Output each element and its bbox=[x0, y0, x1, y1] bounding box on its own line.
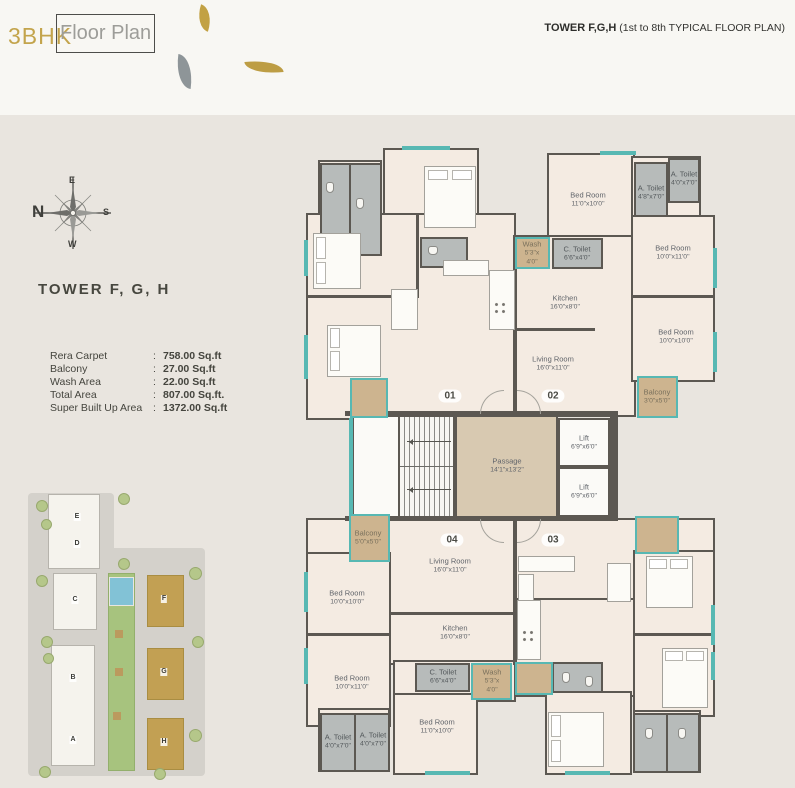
room-label-lift-2: Lift6'9"x6'0" bbox=[571, 483, 597, 502]
area-value: 27.00 Sq.ft bbox=[163, 363, 216, 375]
site-building-ED bbox=[48, 494, 100, 569]
stove-icon bbox=[492, 300, 508, 316]
area-label: Super Built Up Area bbox=[50, 402, 153, 414]
room-label-unit04-kitchen: Kitchen16'0"x8'0" bbox=[440, 624, 470, 643]
unit-number-04: 04 bbox=[440, 534, 463, 547]
toilet-icon bbox=[645, 728, 653, 739]
window bbox=[600, 151, 636, 155]
room-label-unit02-living: Living Room16'0"x11'0" bbox=[532, 355, 574, 374]
tree-icon bbox=[36, 500, 48, 512]
area-value: 1372.00 Sq.ft bbox=[163, 402, 227, 414]
stair-mid-line bbox=[400, 466, 453, 467]
window bbox=[402, 146, 450, 150]
site-label-B: B bbox=[69, 674, 76, 682]
room-label-unit04-bedroom-bottom: Bed Room11'0"x10'0" bbox=[419, 718, 454, 737]
unit-number-02: 02 bbox=[541, 390, 564, 403]
area-label: Total Area bbox=[50, 389, 153, 401]
tree-icon bbox=[118, 493, 130, 505]
compass-label-s: S bbox=[103, 207, 109, 217]
header: 3BHK Floor Plan TOWER F,G,H (1st to 8th … bbox=[0, 0, 795, 115]
tree-icon bbox=[118, 558, 130, 570]
room-label-unit04-balcony: Balcony5'0"x5'0" bbox=[355, 529, 382, 548]
unit04-wall bbox=[306, 633, 391, 636]
unit02-wall bbox=[515, 328, 595, 331]
toilet-icon bbox=[356, 198, 364, 209]
toilet-icon bbox=[428, 246, 438, 255]
sofa bbox=[443, 260, 489, 276]
room-label-unit02-bedroom-right-lower: Bed Room10'0"x10'0" bbox=[658, 328, 693, 347]
tower-note-bold: TOWER F,G,H bbox=[544, 22, 616, 34]
compass-label-e: E bbox=[69, 175, 75, 185]
area-separator: : bbox=[153, 376, 163, 388]
area-table: Rera Carpet : 758.00 Sq.ft Balcony : 27.… bbox=[50, 349, 227, 415]
tree-icon bbox=[41, 519, 52, 530]
unit04-left-rooms bbox=[306, 552, 391, 727]
area-value: 807.00 Sq.ft. bbox=[163, 389, 224, 401]
unit03-wash bbox=[515, 662, 553, 695]
dining-table bbox=[391, 289, 418, 330]
window bbox=[711, 652, 715, 680]
site-label-H: H bbox=[160, 738, 167, 746]
unit03-common-toilet bbox=[552, 662, 603, 693]
unit03-wall bbox=[633, 633, 715, 636]
stove-icon bbox=[520, 628, 536, 644]
window bbox=[425, 771, 470, 775]
pillow bbox=[316, 237, 326, 259]
site-planter bbox=[115, 668, 123, 676]
unit02-wall bbox=[631, 295, 715, 298]
site-label-F: F bbox=[161, 595, 167, 603]
pillow bbox=[316, 262, 326, 284]
toilet-icon bbox=[585, 676, 593, 687]
dining-table bbox=[607, 563, 631, 602]
window bbox=[713, 248, 717, 288]
room-label-unit04-a-toilet-right: A. Toilet4'0"x7'0" bbox=[360, 731, 387, 750]
room-label-unit04-wash: Wash5'3"x4'0" bbox=[483, 667, 502, 694]
window bbox=[304, 335, 308, 379]
leaf-icon bbox=[244, 58, 283, 76]
site-label-G: G bbox=[160, 668, 167, 676]
unit03-toilet-divider bbox=[666, 713, 668, 773]
window bbox=[713, 332, 717, 372]
room-label-unit02-balcony: Balcony3'0"x5'0" bbox=[644, 388, 671, 407]
unit01-wall bbox=[416, 213, 419, 298]
tree-icon bbox=[189, 729, 202, 742]
leaf-icon bbox=[174, 54, 195, 89]
site-pool bbox=[109, 577, 134, 606]
tree-icon bbox=[39, 766, 51, 778]
site-label-A: A bbox=[69, 736, 76, 744]
pillow bbox=[665, 651, 683, 661]
area-label: Wash Area bbox=[50, 376, 153, 388]
room-label-lift-1: Lift6'9"x6'0" bbox=[571, 434, 597, 453]
room-label-unit04-living: Living Room16'0"x11'0" bbox=[429, 557, 471, 576]
room-label-unit04-bedroom-left-lower: Bed Room10'0"x11'0" bbox=[334, 674, 369, 693]
toilet-icon bbox=[562, 672, 570, 683]
area-row: Super Built Up Area : 1372.00 Sq.ft bbox=[50, 402, 227, 415]
area-value: 22.00 Sq.ft bbox=[163, 376, 216, 388]
area-row: Rera Carpet : 758.00 Sq.ft bbox=[50, 349, 227, 362]
area-row: Wash Area : 22.00 Sq.ft bbox=[50, 375, 227, 388]
window bbox=[304, 648, 308, 684]
page-title-suffix: Floor Plan bbox=[57, 22, 151, 45]
compass-label-n: N bbox=[32, 202, 44, 222]
unit04-wall bbox=[391, 612, 516, 615]
area-separator: : bbox=[153, 389, 163, 401]
pillow bbox=[452, 170, 472, 180]
pillow bbox=[670, 559, 688, 569]
leaf-icon bbox=[194, 4, 216, 31]
unit-number-01: 01 bbox=[438, 390, 461, 403]
area-row: Balcony : 27.00 Sq.ft bbox=[50, 362, 227, 375]
pillow bbox=[428, 170, 448, 180]
site-planter bbox=[113, 712, 121, 720]
unit03-balcony bbox=[635, 516, 679, 554]
area-separator: : bbox=[153, 402, 163, 414]
tree-icon bbox=[43, 653, 54, 664]
floor-plan-page: 3BHK Floor Plan TOWER F,G,H (1st to 8th … bbox=[0, 0, 795, 788]
tree-icon bbox=[154, 768, 166, 780]
tree-icon bbox=[41, 636, 53, 648]
pillow bbox=[649, 559, 667, 569]
tree-icon bbox=[192, 636, 204, 648]
sofa bbox=[518, 574, 534, 602]
toilet-icon bbox=[678, 728, 686, 739]
room-label-unit04-a-toilet-left: A. Toilet4'0"x7'0" bbox=[325, 733, 352, 752]
toilet-icon bbox=[326, 182, 334, 193]
area-label: Rera Carpet bbox=[50, 350, 153, 362]
lift-shaft-wall bbox=[610, 415, 618, 518]
unit-number-03: 03 bbox=[541, 534, 564, 547]
pillow bbox=[551, 715, 561, 737]
pillow bbox=[330, 328, 340, 348]
site-label-D: D bbox=[73, 540, 80, 548]
area-label: Balcony bbox=[50, 363, 153, 375]
room-label-unit02-a-toilet-corner: A. Toilet4'0"x7'0" bbox=[671, 170, 698, 189]
area-row: Total Area : 807.00 Sq.ft. bbox=[50, 389, 227, 402]
tower-note: TOWER F,G,H (1st to 8th TYPICAL FLOOR PL… bbox=[544, 22, 785, 34]
sofa bbox=[518, 556, 575, 572]
room-label-unit04-c-toilet: C. Toilet6'6"x4'0" bbox=[430, 668, 457, 687]
stair-landing bbox=[352, 415, 400, 518]
pillow bbox=[551, 740, 561, 762]
site-planter bbox=[115, 630, 123, 638]
stair-dn-arrow bbox=[407, 489, 451, 490]
tree-icon bbox=[36, 575, 48, 587]
window bbox=[711, 605, 715, 645]
site-label-C: C bbox=[71, 596, 78, 604]
window bbox=[565, 771, 610, 775]
room-label-unit02-c-toilet: C. Toilet6'6"x4'0" bbox=[564, 245, 591, 264]
area-separator: : bbox=[153, 350, 163, 362]
room-label-passage: Passage14'1"x13'2" bbox=[490, 457, 524, 476]
stair-up-arrow bbox=[407, 441, 451, 442]
unit01-balcony bbox=[350, 378, 388, 418]
site-label-E: E bbox=[74, 513, 81, 521]
room-label-unit02-bedroom-right-upper: Bed Room10'0"x11'0" bbox=[655, 244, 690, 263]
pillow bbox=[686, 651, 704, 661]
compass-label-w: W bbox=[68, 239, 77, 249]
room-label-unit02-a-toilet-inner: A. Toilet4'8"x7'0" bbox=[638, 184, 665, 203]
window bbox=[304, 240, 308, 276]
room-label-unit02-wash: Wash5'3"x4'0" bbox=[523, 239, 542, 266]
tower-heading: TOWER F, G, H bbox=[38, 281, 170, 298]
page-title-box: Floor Plan bbox=[56, 14, 155, 53]
window bbox=[349, 418, 353, 515]
area-value: 758.00 Sq.ft bbox=[163, 350, 221, 362]
tree-icon bbox=[189, 567, 202, 580]
site-building-BA bbox=[51, 645, 95, 766]
room-label-unit04-bedroom-left-upper: Bed Room10'0"x10'0" bbox=[329, 589, 364, 608]
tower-note-rest: (1st to 8th TYPICAL FLOOR PLAN) bbox=[616, 22, 785, 34]
pillow bbox=[330, 351, 340, 371]
unit02-right-rooms bbox=[631, 215, 715, 382]
room-label-unit02-kitchen: Kitchen16'0"x8'0" bbox=[550, 294, 580, 313]
unit04-toilet-divider bbox=[354, 713, 356, 772]
room-label-unit02-bedroom-top: Bed Room11'0"x10'0" bbox=[570, 191, 605, 210]
area-separator: : bbox=[153, 363, 163, 375]
window bbox=[304, 572, 308, 612]
